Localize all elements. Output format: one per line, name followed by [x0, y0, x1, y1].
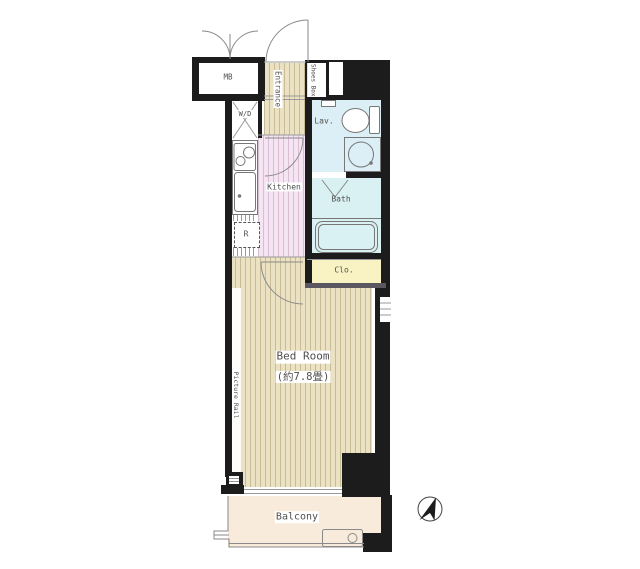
washer-dryer-cross-icon — [233, 102, 257, 138]
kitchen-sink-icon — [235, 173, 256, 212]
lavatory-fixtures — [322, 101, 381, 172]
bedroom-name-label: Bed Room — [276, 351, 331, 364]
bathtub-icon — [312, 219, 381, 253]
stove-burners-icon — [234, 144, 256, 171]
meter-box-label: MB — [222, 74, 233, 83]
kitchen-label: Kitchen — [266, 182, 302, 191]
kitchen-fixtures — [233, 141, 258, 215]
counter-outline — [233, 141, 258, 215]
picture-rail-label: Picture Rail — [232, 371, 240, 420]
balcony-label: Balcony — [275, 511, 319, 523]
lavatory-label: Lav. — [313, 116, 334, 125]
entrance-label: Entrance — [274, 70, 283, 108]
shoes-box-label: Shoes Box — [308, 63, 326, 97]
refrigerator-label: R — [244, 229, 249, 238]
washer-dryer-label: W/D — [238, 110, 253, 118]
north-arrow-icon — [418, 497, 442, 521]
bedroom-size-label: (約7.8畳) — [276, 371, 331, 383]
floor-plan: MB Entrance Shoes Box W/D Kitchen R Lav.… — [0, 0, 640, 569]
balcony-drain-icon — [348, 534, 357, 543]
washbasin-icon — [345, 138, 381, 172]
closet-label: Clo. — [333, 265, 354, 274]
bath-label: Bath — [330, 194, 351, 203]
